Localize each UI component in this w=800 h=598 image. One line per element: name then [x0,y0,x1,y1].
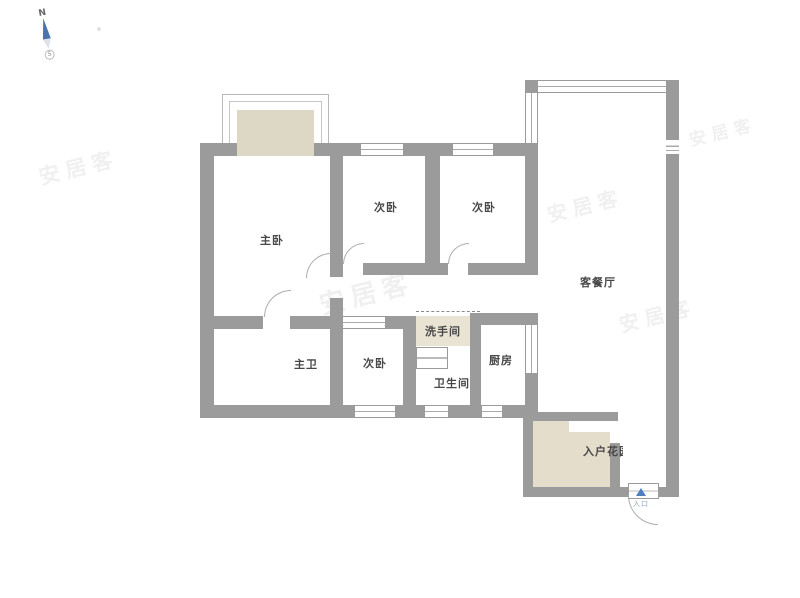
door-arc [264,290,291,317]
wall [290,316,343,329]
wall [330,298,343,405]
watermark-text: 安居客 [686,110,759,151]
room-label-bathroom: 卫生间 [434,375,470,391]
wall [448,405,482,418]
window [482,405,502,418]
window [343,316,385,329]
window [538,80,666,93]
wall [200,143,237,156]
wall [363,263,425,275]
room-label-washroom: 洗手间 [425,323,461,339]
door-arc [448,243,469,264]
compass-north-label: N [37,8,49,20]
door-arc [628,495,658,525]
wall [200,316,263,329]
window [525,93,538,143]
wall [525,143,538,263]
room-label-bedroom-top-right: 次卧 [472,199,496,215]
wall [403,316,416,405]
window [361,143,403,156]
room-label-kitchen: 厨房 [489,352,513,368]
wall [525,80,538,93]
window [453,143,493,156]
room-label-bedroom-top-mid: 次卧 [374,199,398,215]
room-label-bedroom-bottom: 次卧 [363,355,387,371]
wall [468,263,538,275]
bay-window-fill [237,110,314,156]
window [355,405,395,418]
window [425,405,448,418]
wall [525,373,538,405]
wall [200,143,214,418]
garden-fill [533,432,610,487]
fixture [416,347,448,369]
dashed-boundary [416,311,480,312]
compass-needle-icon [39,18,51,40]
vent-mark [666,139,679,155]
wall [200,405,355,418]
room-label-living-dining: 客餐厅 [580,274,616,290]
wall [523,415,533,495]
wall [657,487,679,497]
room-label-master-bedroom: 主卧 [260,232,284,248]
compass-south-label: S [44,49,56,61]
wall [395,405,425,418]
watermark-text: 安居客 [616,291,699,338]
window [525,325,538,373]
door-arc [343,243,364,264]
wall [470,313,538,325]
room-label-master-bath: 主卫 [294,356,318,372]
wall [533,412,618,421]
compass-needle-tail-icon [43,38,53,49]
wall [330,143,343,277]
watermark-text: 安居客 [36,143,122,192]
compass: N S [30,8,62,60]
door-arc [306,253,331,278]
wall [440,263,448,275]
floorplan-canvas: N S 安居客 安居客 安居客 安居客 安居客 安居客 [0,0,800,598]
room-label-entry-garden: 入户花园 [583,443,623,457]
wall [470,316,481,405]
speck [97,27,101,31]
watermark-text: 安居客 [544,181,627,228]
wall [385,316,403,329]
wall [425,143,440,275]
wall [523,487,628,497]
